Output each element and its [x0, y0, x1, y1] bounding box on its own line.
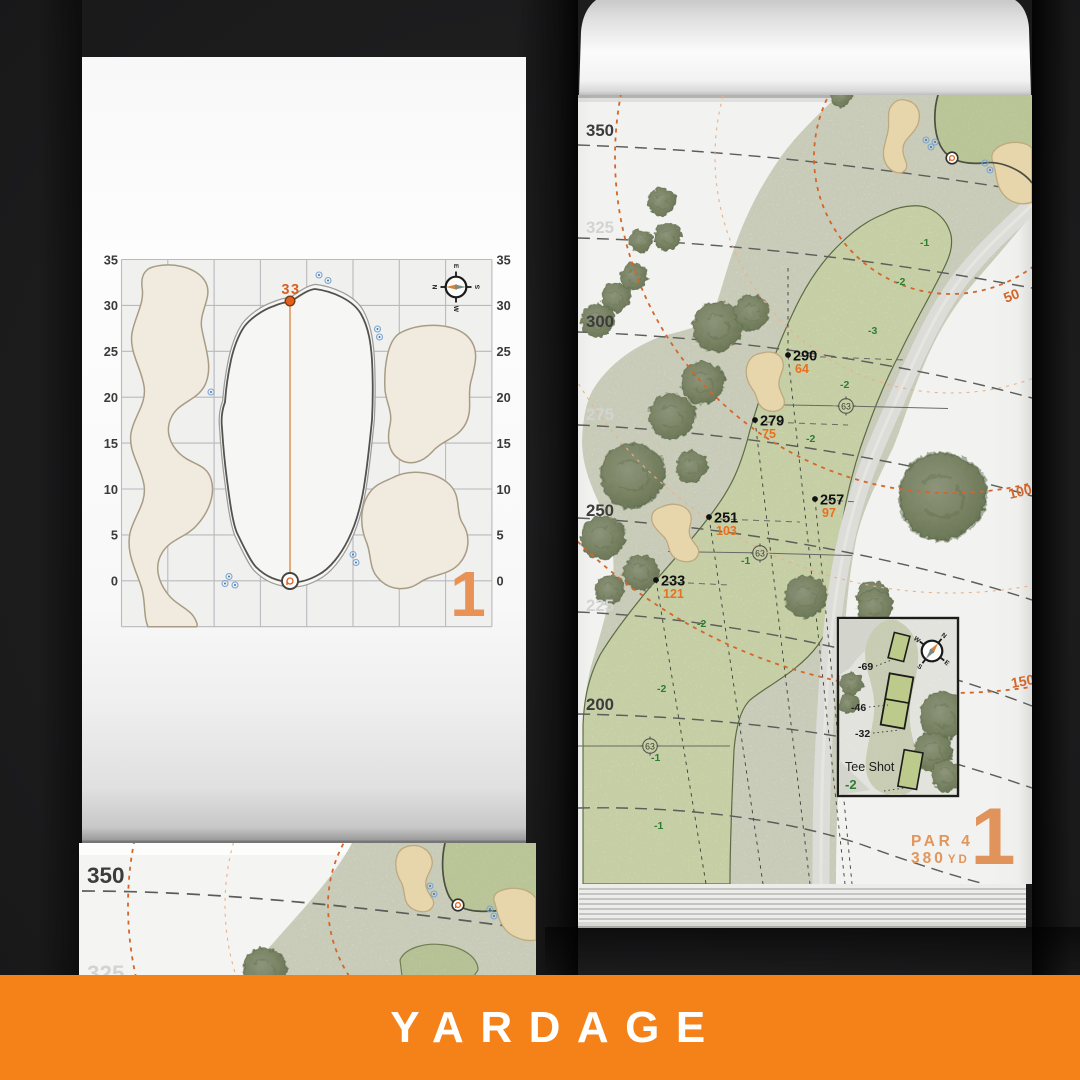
- svg-text:63: 63: [645, 741, 655, 751]
- svg-text:63: 63: [755, 548, 765, 558]
- svg-text:15: 15: [104, 436, 118, 451]
- svg-text:Tee Shot: Tee Shot: [845, 760, 895, 774]
- svg-text:20: 20: [104, 390, 118, 405]
- svg-text:15: 15: [497, 436, 511, 451]
- svg-text:225: 225: [586, 596, 614, 615]
- svg-text:YARDAGE: YARDAGE: [390, 1003, 721, 1052]
- svg-text:E: E: [452, 264, 459, 269]
- svg-text:-2: -2: [840, 379, 849, 391]
- svg-text:103: 103: [716, 524, 737, 538]
- svg-text:75: 75: [762, 427, 776, 441]
- svg-text:N: N: [432, 284, 439, 289]
- svg-text:-2: -2: [845, 777, 857, 792]
- svg-text:-1: -1: [651, 752, 660, 764]
- svg-text:10: 10: [497, 482, 511, 497]
- svg-text:0: 0: [111, 574, 118, 589]
- svg-text:35: 35: [497, 252, 511, 267]
- svg-text:25: 25: [104, 344, 118, 359]
- svg-text:25: 25: [497, 344, 511, 359]
- svg-text:-1: -1: [920, 237, 929, 249]
- svg-text:-2: -2: [697, 618, 706, 630]
- svg-text:63: 63: [841, 401, 851, 411]
- svg-text:97: 97: [822, 506, 836, 520]
- svg-text:-32: -32: [855, 728, 870, 740]
- svg-text:0: 0: [497, 574, 504, 589]
- svg-text:-46: -46: [851, 702, 866, 714]
- svg-text:30: 30: [497, 298, 511, 313]
- svg-text:W: W: [452, 306, 459, 313]
- svg-text:35: 35: [104, 252, 118, 267]
- svg-text:350: 350: [87, 863, 125, 888]
- svg-text:1: 1: [970, 792, 1015, 882]
- svg-text:-2: -2: [657, 683, 666, 695]
- svg-text:30: 30: [104, 298, 118, 313]
- svg-text:10: 10: [104, 482, 118, 497]
- svg-text:-3: -3: [868, 325, 877, 337]
- svg-text:121: 121: [663, 587, 684, 601]
- svg-text:350: 350: [586, 121, 614, 140]
- svg-text:250: 250: [586, 501, 614, 520]
- svg-text:5: 5: [497, 528, 504, 543]
- svg-text:-1: -1: [654, 820, 663, 832]
- svg-text:64: 64: [795, 362, 809, 376]
- svg-text:275: 275: [586, 405, 614, 424]
- svg-text:20: 20: [497, 390, 511, 405]
- svg-text:300: 300: [586, 312, 614, 331]
- svg-text:-69: -69: [858, 661, 873, 673]
- svg-text:S: S: [475, 284, 482, 289]
- svg-text:1: 1: [450, 558, 486, 630]
- svg-text:PAR 4: PAR 4: [911, 833, 974, 850]
- svg-text:200: 200: [586, 695, 614, 714]
- svg-text:-2: -2: [896, 276, 905, 288]
- svg-text:-2: -2: [806, 433, 815, 445]
- svg-text:325: 325: [586, 218, 614, 237]
- svg-text:5: 5: [111, 528, 118, 543]
- svg-text:-1: -1: [741, 555, 750, 567]
